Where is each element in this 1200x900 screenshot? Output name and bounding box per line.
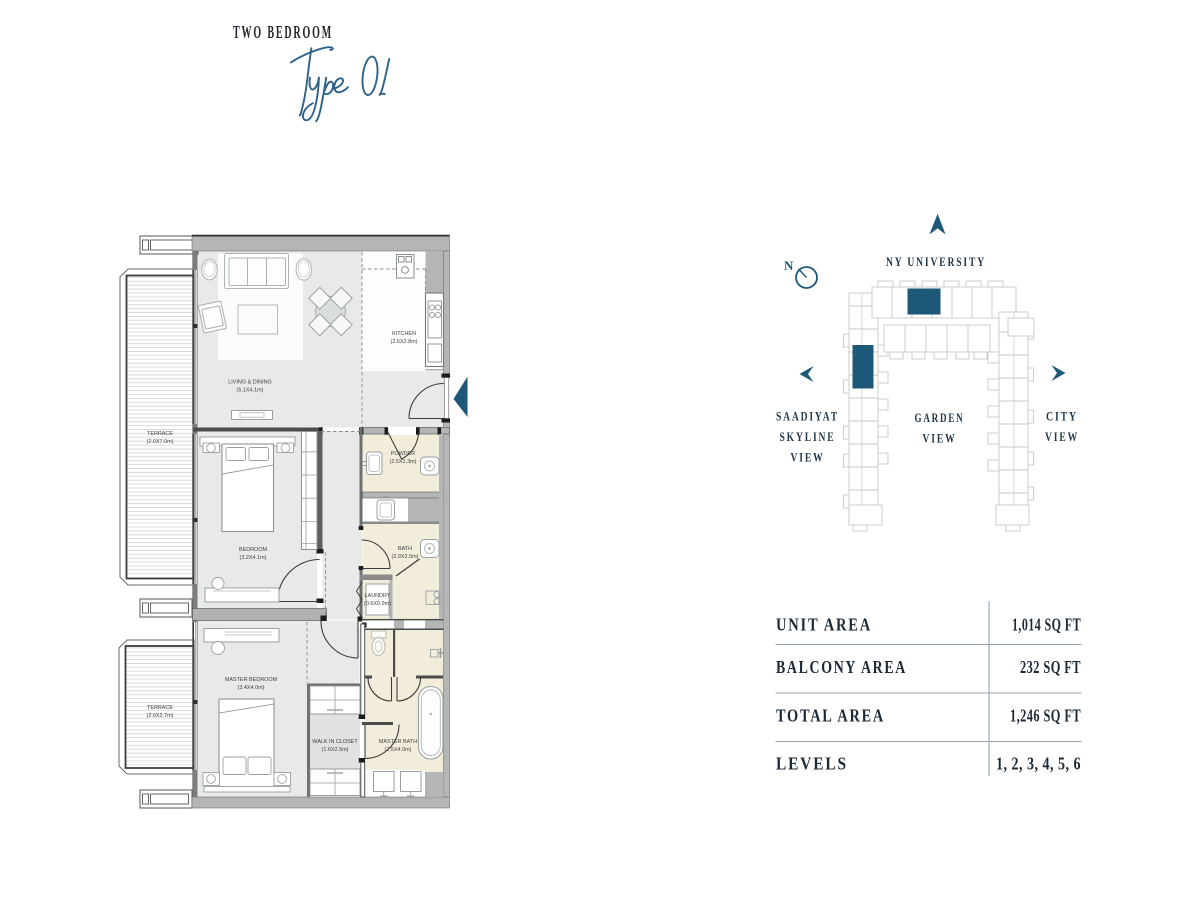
svg-text:VIEW: VIEW [923,432,957,446]
svg-text:(3.4X4.0m): (3.4X4.0m) [238,685,265,691]
svg-text:SAADIYAT: SAADIYAT [776,410,839,424]
svg-text:TERRACE: TERRACE [147,705,173,711]
svg-text:SKYLINE: SKYLINE [780,430,836,444]
svg-text:1,014 SQ FT: 1,014 SQ FT [1012,615,1081,635]
svg-text:NY UNIVERSITY: NY UNIVERSITY [886,255,986,269]
svg-text:VIEW: VIEW [791,451,825,465]
svg-text:BEDROOM: BEDROOM [239,547,268,553]
svg-text:(3.2X4.1m): (3.2X4.1m) [240,555,267,561]
svg-text:WALK IN CLOSET: WALK IN CLOSET [312,739,358,745]
svg-text:(2.0X7.0m): (2.0X7.0m) [147,439,174,445]
svg-text:(2.5X4.0m): (2.5X4.0m) [385,747,412,753]
svg-text:1,246 SQ FT: 1,246 SQ FT [1010,706,1081,726]
svg-text:KITCHEN: KITCHEN [392,331,416,337]
svg-text:(2.5X1.3m): (2.5X1.3m) [390,459,417,465]
svg-text:(2.6X2.8m): (2.6X2.8m) [391,339,418,345]
svg-text:LEVELS: LEVELS [776,754,848,774]
svg-text:POWDER: POWDER [391,451,416,457]
svg-text:(1.6X2.5m): (1.6X2.5m) [322,747,349,753]
svg-text:LAUNDRY: LAUNDRY [365,593,391,599]
svg-text:232 SQ FT: 232 SQ FT [1020,657,1081,677]
svg-text:CITY: CITY [1046,410,1078,424]
svg-text:1, 2, 3, 4, 5, 6: 1, 2, 3, 4, 5, 6 [996,754,1081,774]
svg-text:(2.0X2.7m): (2.0X2.7m) [147,713,174,719]
svg-text:VIEW: VIEW [1045,430,1079,444]
svg-text:TOTAL AREA: TOTAL AREA [776,706,885,726]
svg-text:UNIT AREA: UNIT AREA [776,615,872,635]
svg-text:MASTER BATH: MASTER BATH [379,739,417,745]
svg-text:TERRACE: TERRACE [147,431,173,437]
svg-text:LIVING & DINING: LIVING & DINING [228,380,272,386]
svg-text:(5.1X4.1m): (5.1X4.1m) [237,388,264,394]
svg-text:(0.6X0.9m): (0.6X0.9m) [364,601,391,607]
svg-text:N: N [784,258,794,273]
svg-text:BATH: BATH [398,546,412,552]
svg-text:GARDEN: GARDEN [915,411,965,425]
svg-text:MASTER BEDROOM: MASTER BEDROOM [225,677,278,683]
svg-text:BALCONY AREA: BALCONY AREA [776,657,907,677]
svg-text:TWO BEDROOM: TWO BEDROOM [233,22,333,42]
svg-text:(2.9X2.5m): (2.9X2.5m) [392,554,419,560]
